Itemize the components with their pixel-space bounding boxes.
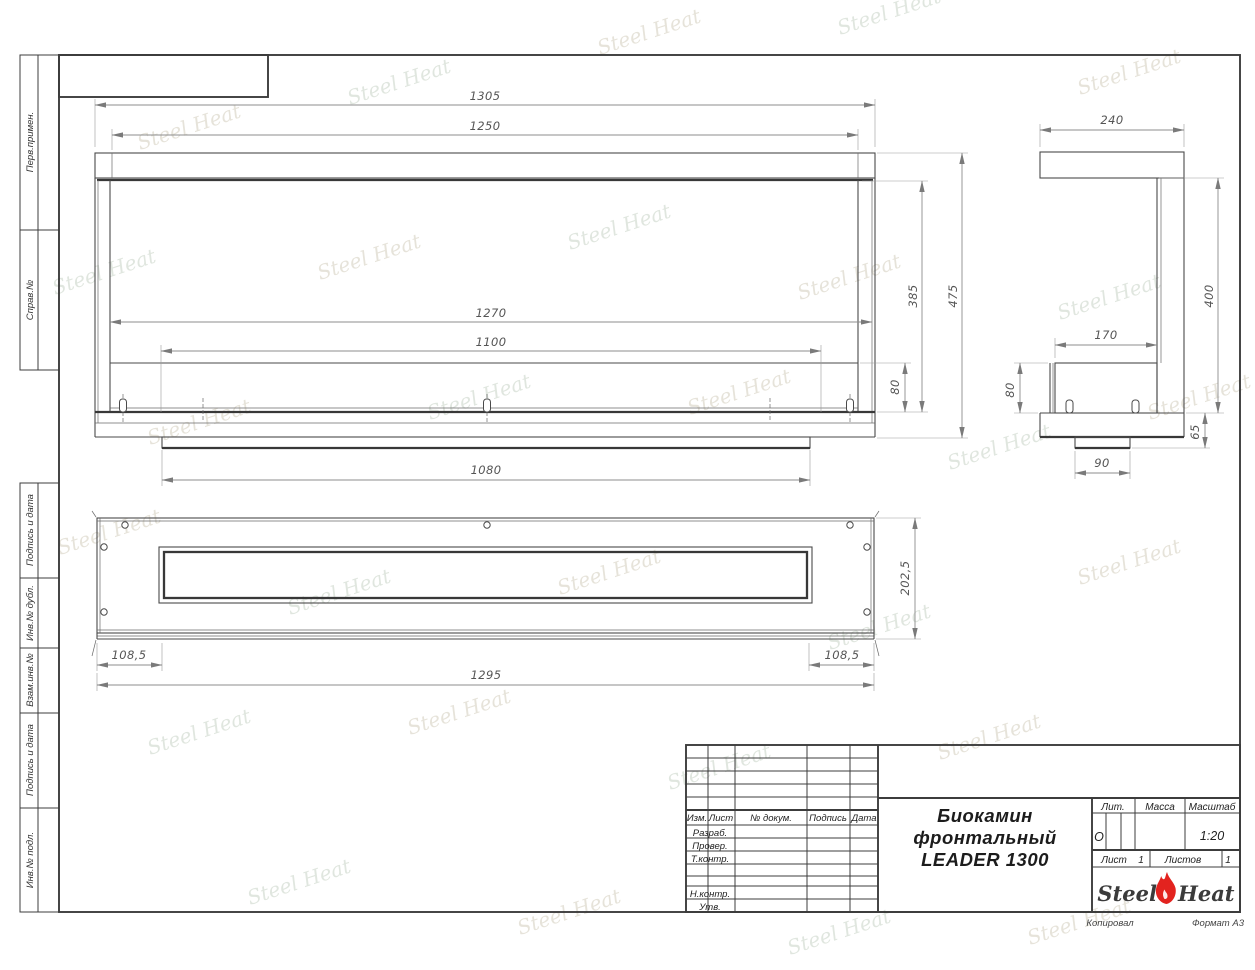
mounting-hole — [122, 522, 128, 528]
list-label: Лист — [1100, 855, 1127, 866]
logo-text-steel: Steel — [1097, 881, 1157, 906]
stamp-row-nkontr: Н.контр. — [690, 889, 730, 900]
list-value: 1 — [1138, 855, 1144, 866]
watermark: Steel Heat — [1074, 43, 1184, 99]
watermark: Steel Heat — [244, 853, 354, 909]
mounting-hole — [864, 609, 870, 615]
dim-1080: 1080 — [471, 463, 502, 477]
stamp-row-razrab: Разраб. — [693, 828, 727, 839]
stamp-row-utv: Утв. — [698, 902, 721, 913]
dim-475: 475 — [946, 284, 960, 307]
logo-text-heat: Heat — [1177, 881, 1235, 906]
dim-1100: 1100 — [476, 335, 507, 349]
watermark: Steel Heat — [344, 53, 454, 109]
clip-tab — [120, 399, 127, 412]
watermark: Steel Heat — [49, 243, 159, 299]
dim-202: 202,5 — [898, 561, 912, 596]
format-label: Формат А3 — [1192, 918, 1245, 929]
watermark: Steel Heat — [1054, 268, 1164, 324]
watermark: Steel Heat — [794, 248, 904, 304]
lit-label: Лит. — [1100, 802, 1124, 813]
title-block: Изм. Лист № докум. Подпись Дата Разраб. … — [686, 745, 1240, 913]
clip-tab — [847, 399, 854, 412]
clip-tab — [1066, 400, 1073, 413]
stamp-col-podpis: Подпись — [809, 813, 847, 824]
stamp-row-prover: Провер. — [692, 841, 727, 852]
stamp-col-dokum: № докум. — [750, 813, 792, 824]
doc-title-line2: фронтальный — [913, 827, 1056, 848]
watermark: Steel Heat — [54, 503, 164, 559]
watermark: Steel Heat — [834, 0, 944, 40]
watermark: Steel Heat — [664, 738, 774, 794]
frame-label-vzam-inv: Взам.инв.№ — [25, 653, 36, 706]
frame-label-inv-podl: Инв.№ подл. — [25, 832, 36, 888]
technical-drawing: Steel Heat Steel Heat Steel Heat Steel H… — [0, 0, 1255, 970]
watermark: Steel Heat — [1074, 533, 1184, 589]
dim-1295: 1295 — [471, 668, 502, 682]
stamp-row-tkontr: Т.контр. — [691, 854, 729, 865]
watermark: Steel Heat — [404, 683, 514, 739]
massa-label: Масса — [1145, 802, 1175, 813]
dim-80-front: 80 — [888, 379, 902, 394]
dim-240: 240 — [1100, 113, 1123, 127]
lit-value: О — [1094, 830, 1104, 844]
dim-170: 170 — [1094, 328, 1117, 342]
watermark: Steel Heat — [1144, 368, 1254, 424]
flame-icon — [1156, 872, 1176, 904]
watermark: Steel Heat — [314, 228, 424, 284]
dim-1250: 1250 — [470, 119, 501, 133]
steelheat-logo: Steel Heat — [1097, 872, 1234, 906]
frame-label-podpis-data-1: Подпись и дата — [25, 494, 36, 566]
dim-108-left: 108,5 — [112, 648, 147, 662]
kopiroval-label: Копировал — [1086, 918, 1134, 929]
masshtab-label: Масштаб — [1189, 801, 1236, 813]
doc-title-line1: Биокамин — [937, 805, 1033, 826]
front-view — [95, 153, 875, 448]
dim-65: 65 — [1188, 424, 1202, 439]
side-foot — [1075, 437, 1130, 448]
mounting-hole — [101, 544, 107, 550]
watermark: Steel Heat — [144, 703, 254, 759]
drawing-sheet: { "watermark": {"text": "Steel Heat"}, "… — [0, 0, 1255, 970]
mounting-hole — [847, 522, 853, 528]
watermark: Steel Heat — [564, 198, 674, 254]
watermark: Steel Heat — [944, 418, 1054, 474]
watermark: Steel Heat — [284, 563, 394, 619]
clip-tab — [484, 399, 491, 412]
frame-label-inv-dubl: Инв.№ дубл. — [25, 585, 36, 641]
top-left-block — [59, 55, 268, 97]
dim-1270: 1270 — [476, 306, 507, 320]
watermark: Steel Heat — [134, 98, 244, 154]
dim-80-side: 80 — [1003, 382, 1017, 397]
listov-label: Листов — [1164, 855, 1201, 866]
watermark: Steel Heat — [594, 3, 704, 59]
clip-tab — [1132, 400, 1139, 413]
watermark: Steel Heat — [424, 368, 534, 424]
frame-label-sprav-no: Справ.№ — [25, 280, 36, 321]
mounting-hole — [864, 544, 870, 550]
stamp-col-data: Дата — [850, 813, 876, 824]
below-frame-notes: Копировал Формат А3 — [1086, 918, 1244, 929]
dim-385: 385 — [906, 284, 920, 307]
dim-400: 400 — [1202, 284, 1216, 307]
stamp-col-izm: Изм. — [687, 813, 707, 824]
sheet-frame: Перв.примен. Справ.№ Подпись и дата Инв.… — [20, 55, 1240, 912]
dim-1305: 1305 — [470, 89, 501, 103]
mounting-hole — [101, 609, 107, 615]
dim-108-right: 108,5 — [825, 648, 860, 662]
pedestal — [162, 437, 810, 448]
plan-opening — [159, 547, 812, 603]
plan-view-dimensions: 108,5 108,5 1295 202,5 — [97, 518, 921, 691]
frame-label-perv-primen: Перв.примен. — [25, 112, 36, 173]
frame-label-podpis-data-2: Подпись и дата — [25, 724, 36, 796]
plan-view — [92, 511, 879, 656]
watermark: Steel Heat — [934, 708, 1044, 764]
watermark: Steel Heat — [824, 598, 934, 654]
dim-90: 90 — [1094, 456, 1109, 470]
mounting-hole — [484, 522, 490, 528]
stamp-col-list: Лист — [708, 813, 734, 824]
listov-value: 1 — [1225, 855, 1231, 866]
masshtab-value: 1:20 — [1200, 829, 1224, 843]
doc-title-line3: LEADER 1300 — [921, 849, 1049, 870]
